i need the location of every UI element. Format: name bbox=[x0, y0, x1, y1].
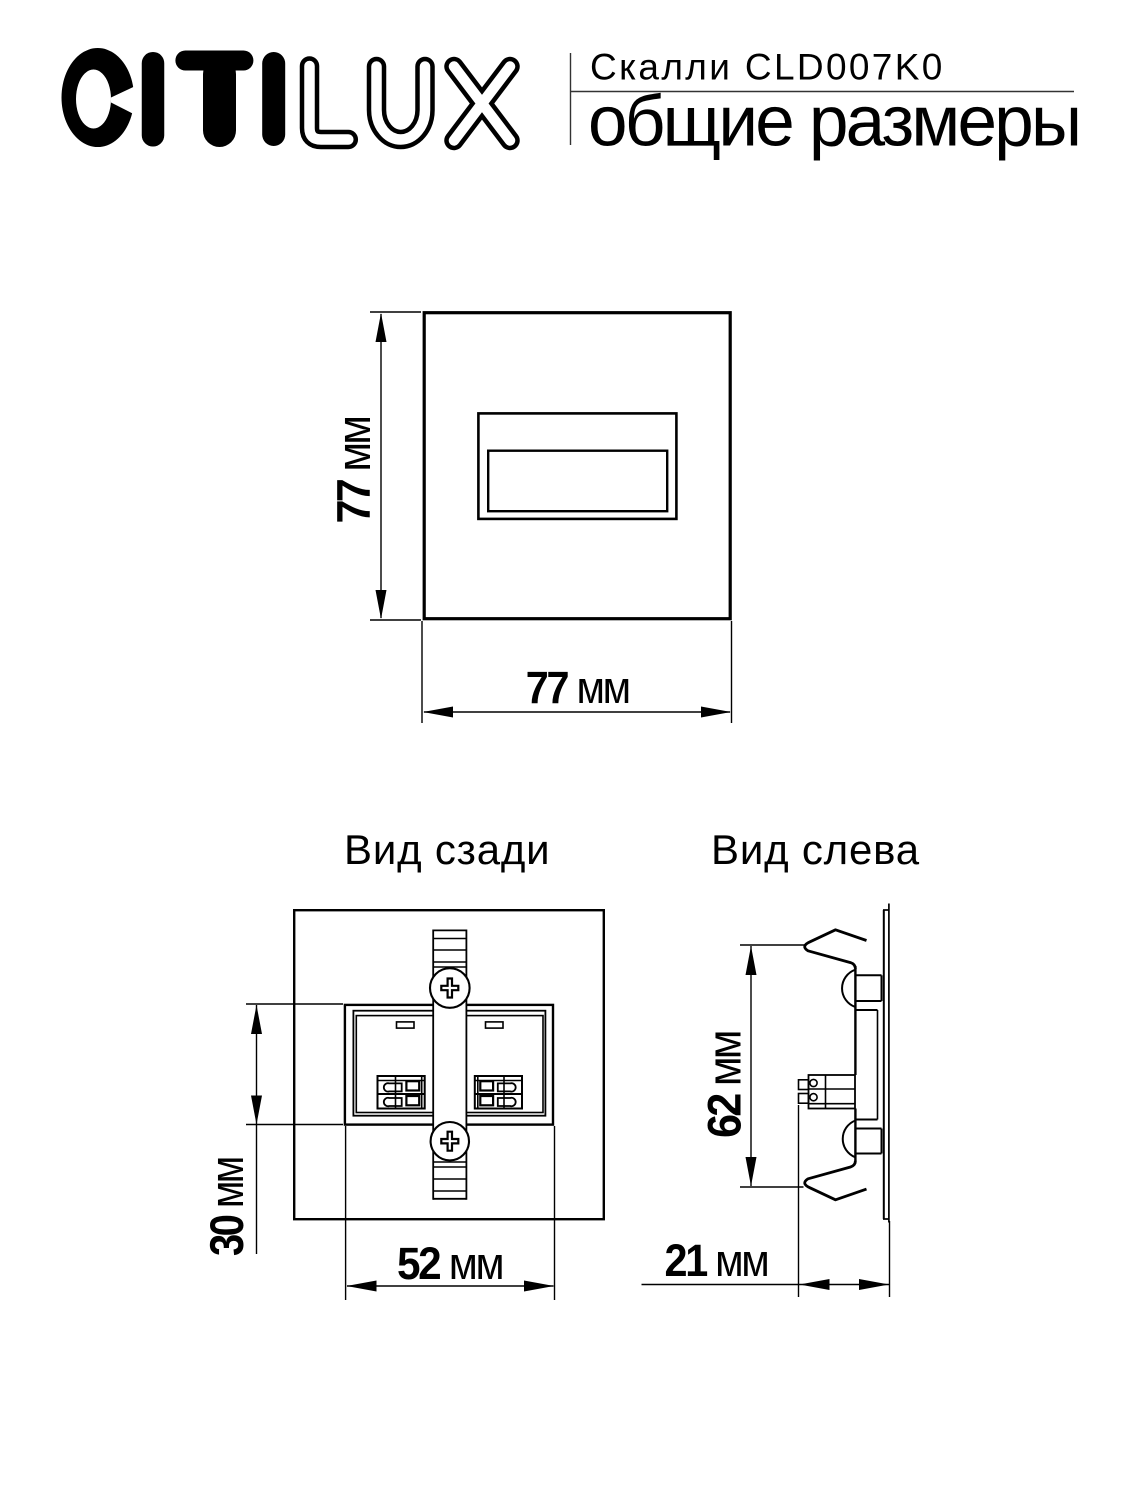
svg-text:52 мм: 52 мм bbox=[397, 1239, 503, 1289]
svg-text:77 мм: 77 мм bbox=[526, 663, 629, 713]
svg-text:Скалли CLD007K0: Скалли CLD007K0 bbox=[590, 47, 945, 88]
svg-text:Вид слева: Вид слева bbox=[711, 826, 920, 873]
svg-text:77 мм: 77 мм bbox=[327, 418, 380, 524]
svg-text:Вид сзади: Вид сзади bbox=[344, 826, 550, 873]
svg-text:30 мм: 30 мм bbox=[202, 1158, 254, 1256]
svg-text:21 мм: 21 мм bbox=[665, 1236, 768, 1286]
svg-text:общие размеры: общие размеры bbox=[588, 83, 1079, 162]
svg-text:62 мм: 62 мм bbox=[698, 1032, 751, 1138]
